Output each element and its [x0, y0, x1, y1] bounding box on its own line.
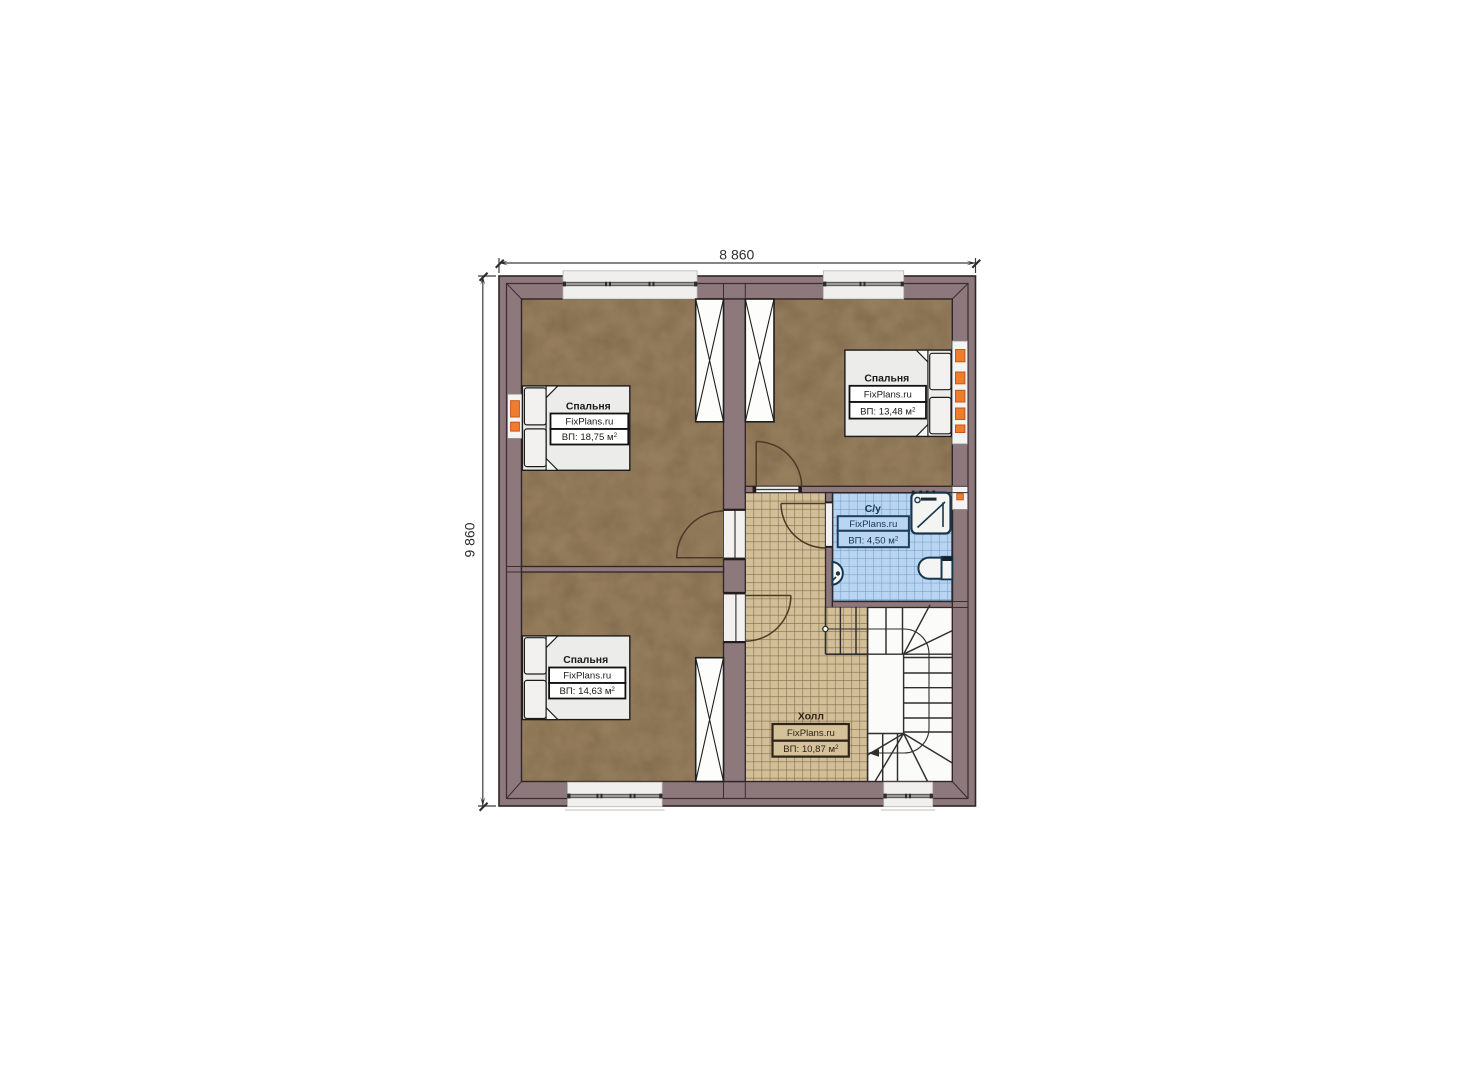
svg-text:Спальня: Спальня [566, 402, 611, 413]
svg-text:ВП: 18,75 м2: ВП: 18,75 м2 [562, 432, 618, 443]
svg-text:9 860: 9 860 [462, 522, 478, 557]
svg-text:ВП: 10,87 м2: ВП: 10,87 м2 [783, 744, 839, 755]
svg-text:FixPlans.ru: FixPlans.ru [864, 389, 912, 400]
svg-text:ВП: 14,63 м2: ВП: 14,63 м2 [560, 686, 616, 697]
svg-text:FixPlans.ru: FixPlans.ru [563, 671, 611, 682]
svg-text:8 860: 8 860 [719, 247, 754, 263]
svg-text:FixPlans.ru: FixPlans.ru [565, 417, 613, 428]
svg-text:Холл: Холл [798, 712, 824, 723]
svg-text:Спальня: Спальня [563, 655, 608, 666]
svg-text:ВП: 13,48 м2: ВП: 13,48 м2 [860, 406, 916, 417]
svg-text:С/у: С/у [865, 504, 881, 515]
svg-text:FixPlans.ru: FixPlans.ru [849, 519, 897, 530]
svg-text:FixPlans.ru: FixPlans.ru [787, 728, 835, 739]
svg-text:ВП: 4,50 м2: ВП: 4,50 м2 [848, 536, 899, 547]
svg-text:Спальня: Спальня [864, 373, 909, 384]
